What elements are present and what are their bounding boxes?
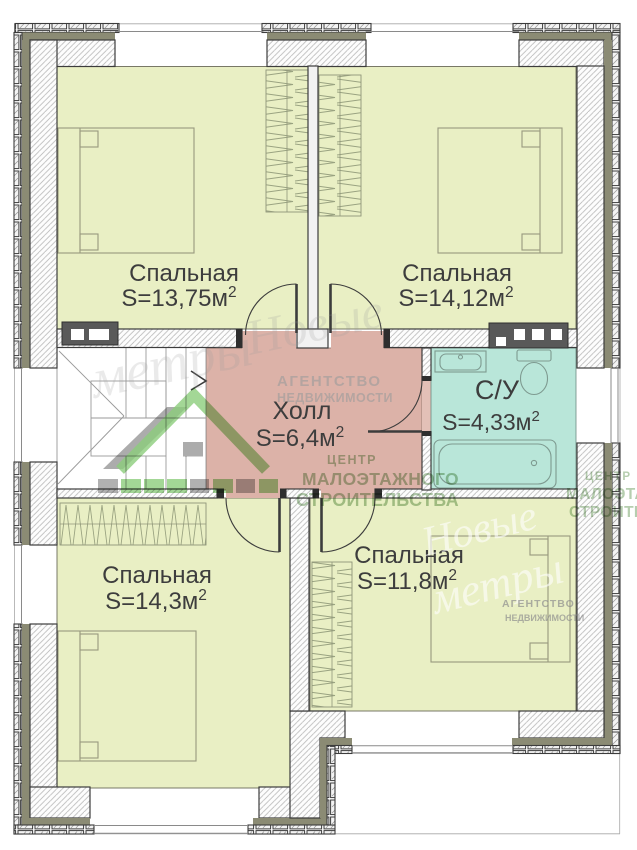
- svg-text:С/У: С/У: [475, 375, 520, 405]
- svg-text:Спальная: Спальная: [129, 260, 239, 287]
- svg-text:S=4,33м2: S=4,33м2: [442, 408, 540, 435]
- svg-text:АГЕНТСТВО: АГЕНТСТВО: [277, 373, 382, 390]
- svg-text:СТРОИТЕЛЬСТВА: СТРОИТЕЛЬСТВА: [569, 504, 637, 521]
- svg-text:S=14,3м2: S=14,3м2: [105, 587, 207, 615]
- svg-text:S=13,75м2: S=13,75м2: [121, 284, 236, 312]
- svg-text:МАЛОЭТАЖНОГО: МАЛОЭТАЖНОГО: [302, 469, 459, 489]
- svg-text:Спальная: Спальная: [102, 562, 212, 589]
- svg-text:S=14,12м2: S=14,12м2: [398, 284, 513, 312]
- svg-text:НЕДВИЖИМОСТИ: НЕДВИЖИМОСТИ: [277, 391, 393, 405]
- svg-text:ЦЕНТР: ЦЕНТР: [585, 471, 632, 483]
- svg-text:Спальная: Спальная: [402, 260, 512, 287]
- svg-text:ЦЕНТР: ЦЕНТР: [327, 453, 377, 467]
- svg-text:МАЛОЭТАЖНОГО: МАЛОЭТАЖНОГО: [566, 486, 637, 503]
- svg-text:S=6,4м2: S=6,4м2: [256, 424, 345, 452]
- svg-text:СТРОИТЕЛЬСТВА: СТРОИТЕЛЬСТВА: [296, 490, 459, 510]
- svg-text:АГЕНТСТВО: АГЕНТСТВО: [502, 598, 575, 610]
- svg-text:НЕДВИЖИМОСТИ: НЕДВИЖИМОСТИ: [505, 613, 584, 623]
